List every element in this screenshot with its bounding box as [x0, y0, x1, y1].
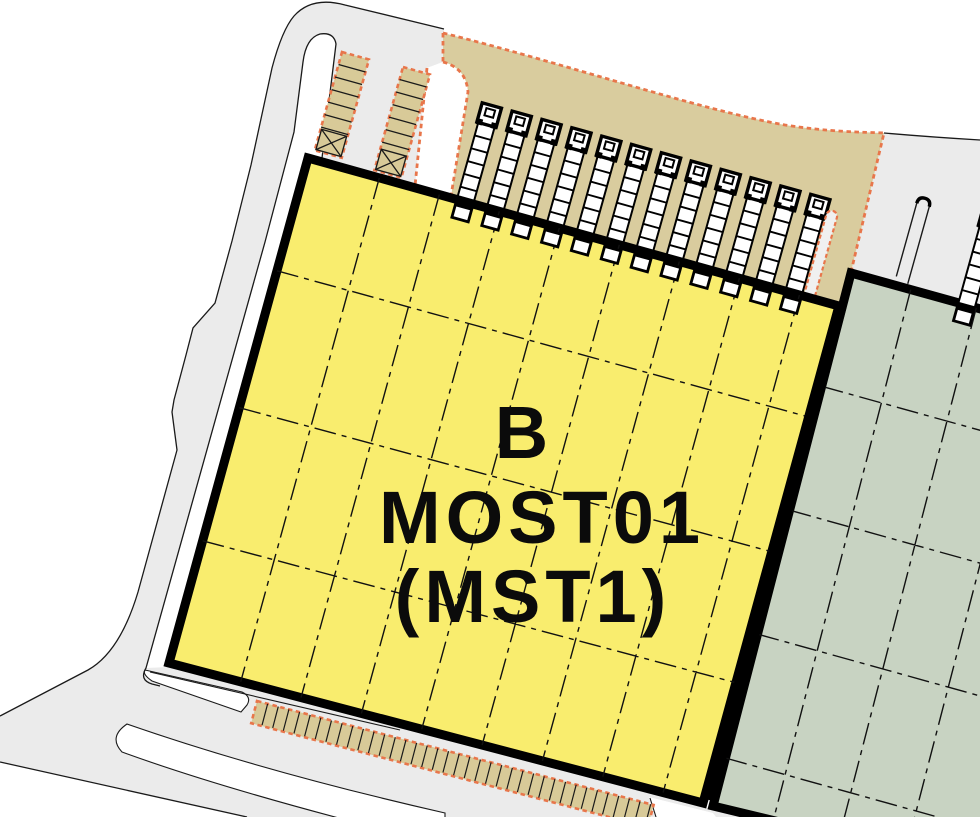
svg-text:MOST01: MOST01 — [379, 476, 705, 559]
svg-text:B: B — [495, 391, 553, 474]
svg-text:(MST1): (MST1) — [395, 555, 672, 638]
